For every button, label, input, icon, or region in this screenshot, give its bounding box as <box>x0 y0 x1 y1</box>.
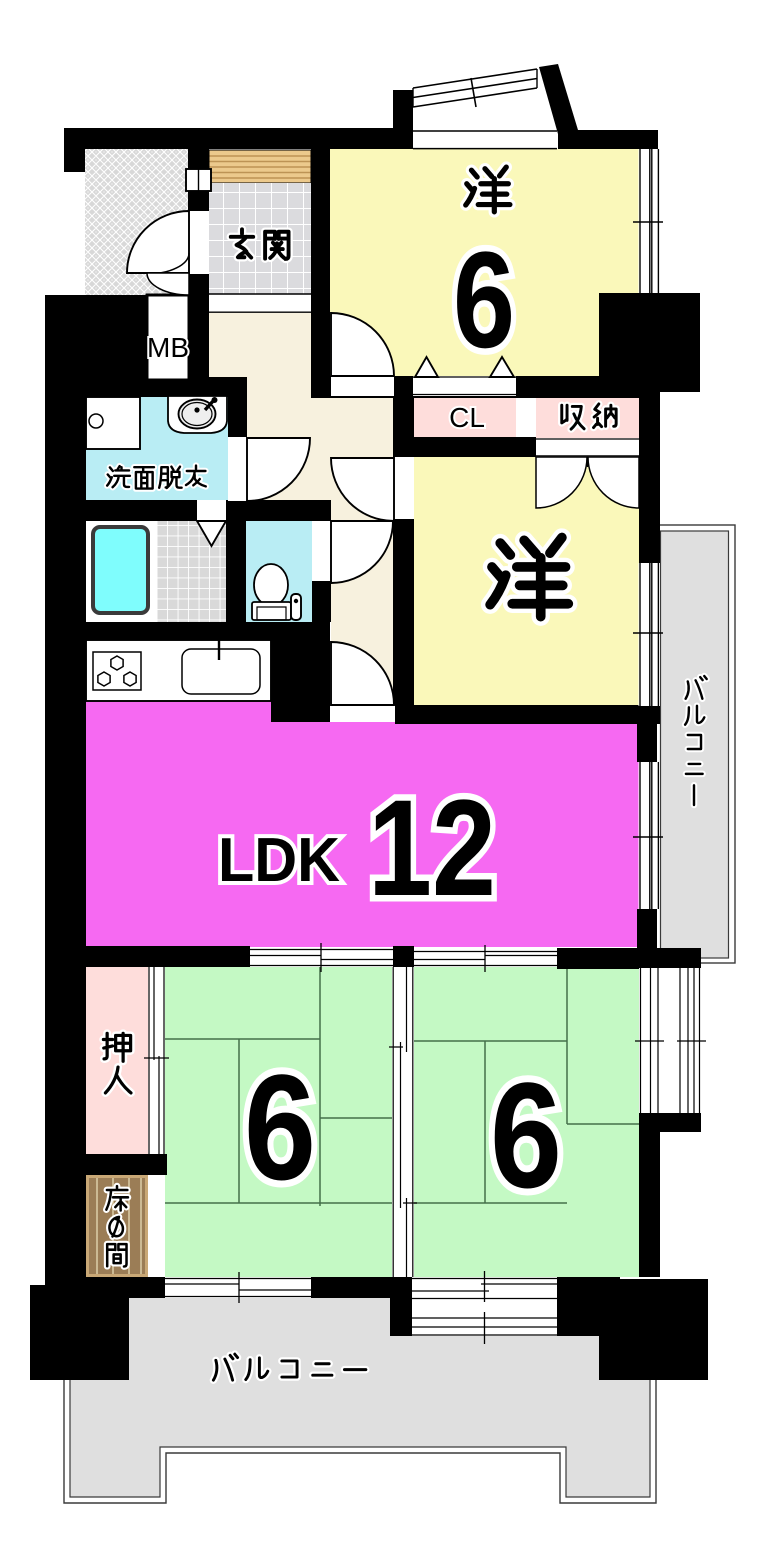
svg-text:6: 6 <box>453 224 515 377</box>
svg-text:12: 12 <box>368 772 496 925</box>
svg-text:MB: MB <box>147 332 189 363</box>
svg-text:LDK: LDK <box>218 826 340 895</box>
svg-text:6: 6 <box>490 1051 562 1219</box>
svg-text:CL: CL <box>449 402 485 433</box>
svg-text:6: 6 <box>244 1043 316 1211</box>
